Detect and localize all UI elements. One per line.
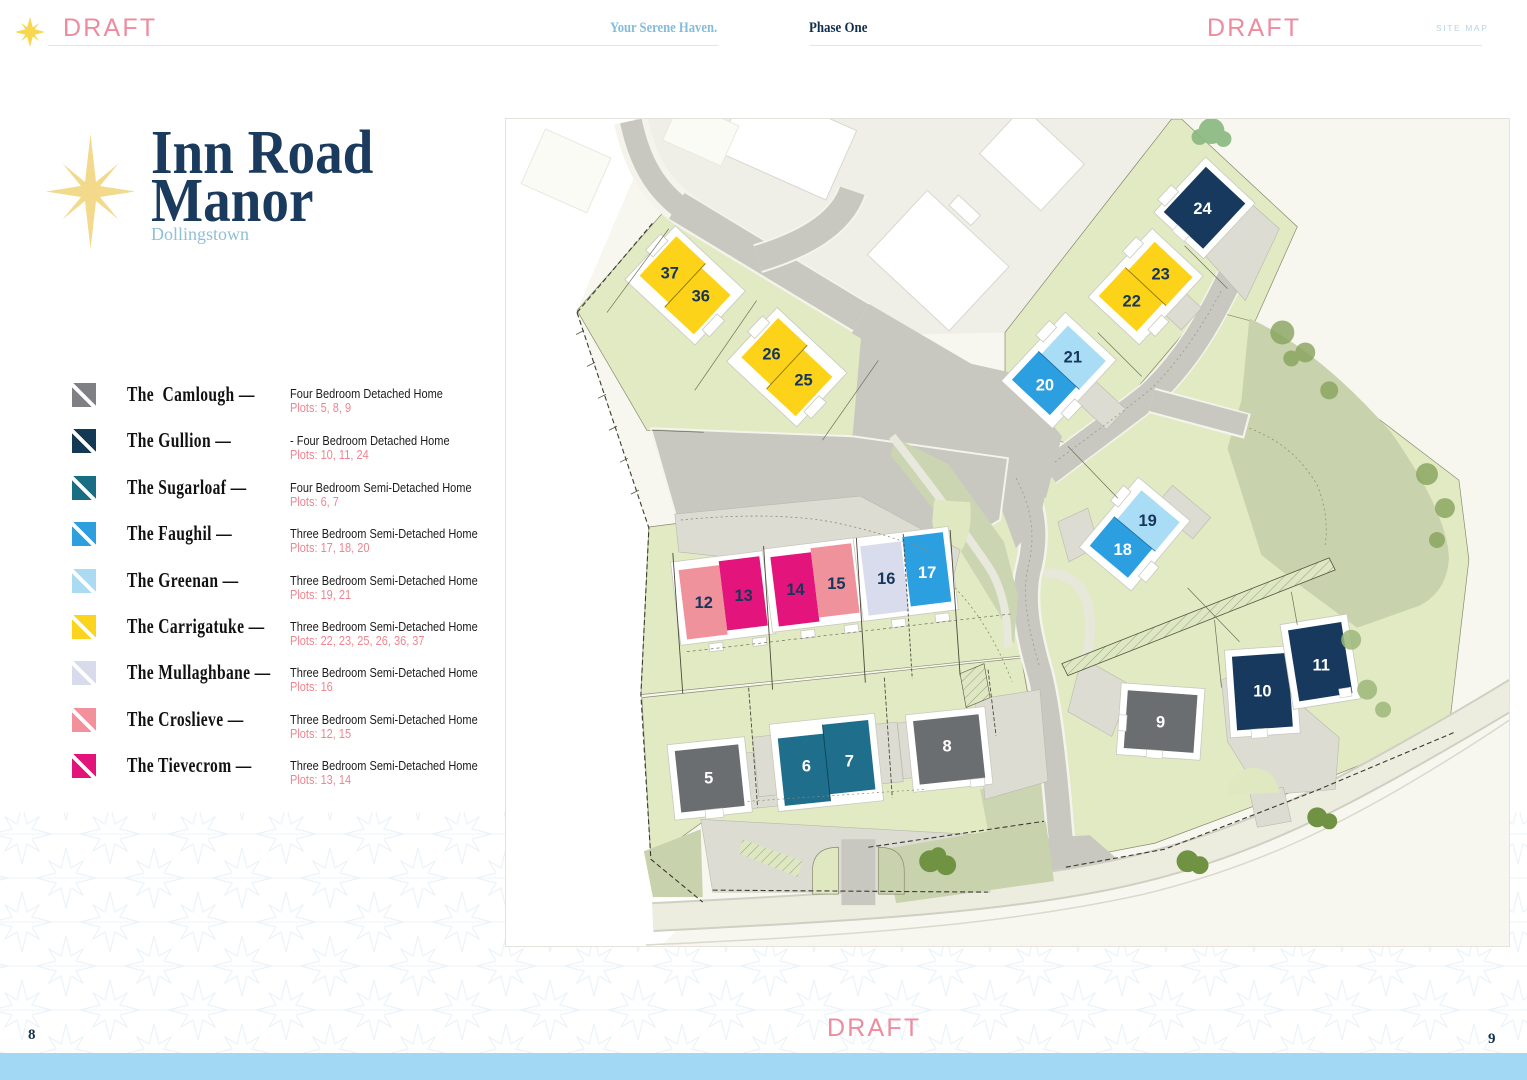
svg-text:7: 7 [845, 752, 854, 770]
svg-text:20: 20 [1036, 376, 1054, 394]
svg-text:21: 21 [1064, 348, 1082, 366]
svg-text:18: 18 [1114, 541, 1132, 559]
svg-text:12: 12 [695, 594, 713, 612]
svg-text:24: 24 [1193, 200, 1212, 218]
svg-text:19: 19 [1139, 512, 1157, 530]
svg-text:10: 10 [1253, 683, 1271, 701]
svg-text:15: 15 [827, 575, 845, 593]
svg-text:36: 36 [692, 288, 710, 306]
svg-text:6: 6 [802, 757, 811, 775]
svg-text:9: 9 [1156, 714, 1165, 732]
svg-text:22: 22 [1123, 293, 1141, 311]
svg-text:14: 14 [786, 581, 805, 599]
svg-text:37: 37 [661, 265, 679, 283]
svg-text:25: 25 [794, 371, 812, 389]
svg-text:5: 5 [704, 769, 713, 787]
svg-text:17: 17 [918, 564, 936, 582]
svg-text:11: 11 [1313, 657, 1330, 675]
svg-text:16: 16 [877, 570, 895, 588]
svg-text:13: 13 [734, 587, 752, 605]
svg-text:26: 26 [762, 345, 780, 363]
svg-text:23: 23 [1151, 266, 1169, 284]
svg-text:8: 8 [943, 737, 952, 755]
